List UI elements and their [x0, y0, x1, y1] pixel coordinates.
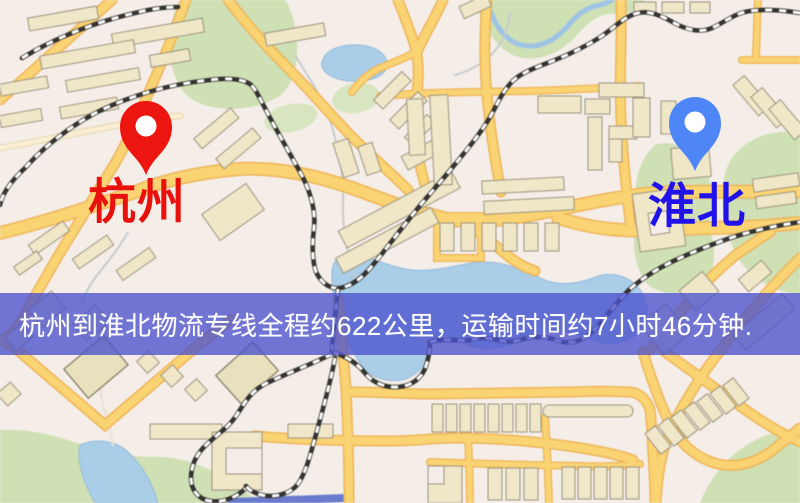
destination-pin-hole: [685, 112, 706, 133]
route-info-text: 杭州到淮北物流专线全程约622公里，运输时间约7小时46分钟.: [0, 306, 752, 343]
destination-pin-icon: [669, 97, 721, 171]
origin-pin-hole: [136, 116, 157, 137]
route-info-banner: 杭州到淮北物流专线全程约622公里，运输时间约7小时46分钟.: [0, 293, 800, 355]
route-map-screenshot: 杭州 淮北 杭州到淮北物流专线全程约622公里，运输时间约7小时46分钟.: [0, 0, 800, 503]
markers-layer: 杭州 淮北: [0, 0, 800, 503]
origin-pin-icon: [120, 101, 172, 175]
destination-label: 淮北: [648, 180, 746, 233]
origin-label: 杭州: [88, 176, 186, 229]
origin-pin[interactable]: [120, 101, 172, 175]
destination-pin[interactable]: [669, 97, 721, 171]
